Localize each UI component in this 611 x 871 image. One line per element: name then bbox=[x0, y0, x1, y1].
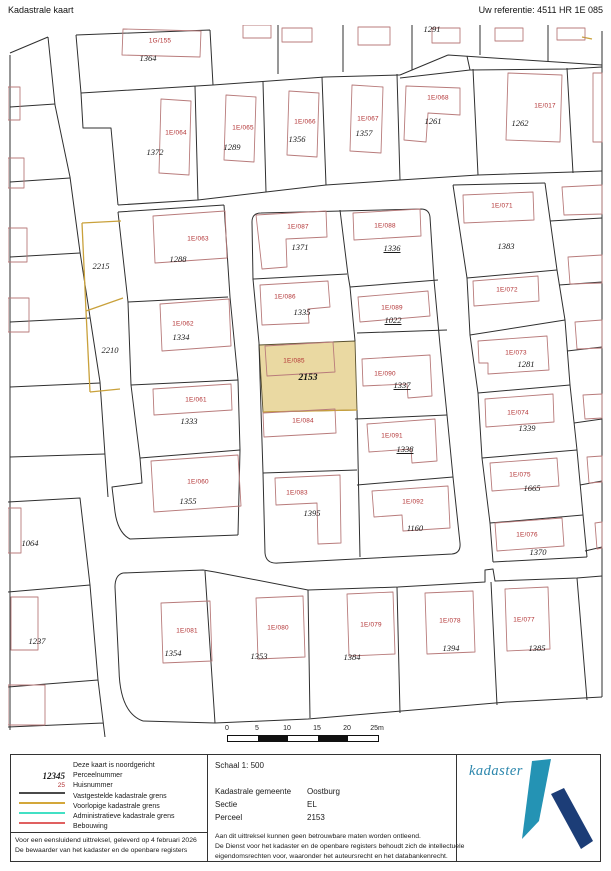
info-row: SectieEL bbox=[215, 800, 237, 809]
parcel-perceelnummer-label: 1371 bbox=[292, 242, 309, 252]
legend-label: Bebouwing bbox=[73, 822, 108, 832]
parcel-perceelnummer-label: 1394 bbox=[443, 643, 460, 653]
kadaster-logo-text: kadaster bbox=[469, 763, 523, 780]
info-row: Kadastrale gemeenteOostburg bbox=[215, 787, 291, 796]
parcel-perceelnummer-label: 1064 bbox=[22, 538, 39, 548]
parcel-perceelnummer-label: 1370 bbox=[530, 547, 547, 557]
parcel-perceelnummer-label: 2210 bbox=[102, 345, 119, 355]
parcel-huisnummer-label: 1E/071 bbox=[491, 203, 512, 210]
parcel-huisnummer-label: 1E/076 bbox=[516, 532, 537, 539]
cadastral-map: 1G/1551E/0641E/0651E/0661E/0671E/0681E/0… bbox=[8, 25, 603, 737]
parcel-perceelnummer-label: 2215 bbox=[93, 261, 110, 271]
page-title: Kadastrale kaart bbox=[8, 5, 74, 15]
scale-tick-label: 10 bbox=[283, 725, 291, 732]
parcel-huisnummer-label: 1E/068 bbox=[427, 95, 448, 102]
legend-panel: Deze kaart is noordgericht12345Perceelnu… bbox=[10, 754, 601, 862]
parcel-perceelnummer-label: 1356 bbox=[289, 134, 306, 144]
parcel-huisnummer-label: 1E/075 bbox=[509, 472, 530, 479]
info-label: Perceel bbox=[215, 813, 242, 822]
parcel-perceelnummer-label: 1022 bbox=[385, 315, 402, 325]
scale-tick-label: 15 bbox=[313, 725, 321, 732]
parcel-huisnummer-label: 1E/063 bbox=[187, 236, 208, 243]
parcel-perceelnummer-label: 1337 bbox=[394, 380, 411, 390]
info-row: Perceel2153 bbox=[215, 813, 242, 822]
parcel-huisnummer-label: 1E/081 bbox=[176, 628, 197, 635]
parcel-perceelnummer-label: 1334 bbox=[173, 332, 190, 342]
parcel-perceelnummer-label: 1354 bbox=[165, 648, 182, 658]
parcel-perceelnummer-label: 1364 bbox=[140, 53, 157, 63]
parcel-perceelnummer-label: 1262 bbox=[512, 118, 529, 128]
parcel-huisnummer-label: 1E/064 bbox=[165, 130, 186, 137]
parcel-perceelnummer-label: 1338 bbox=[397, 444, 414, 454]
legend-line-swatch bbox=[19, 792, 65, 794]
parcel-perceelnummer-label: 1355 bbox=[180, 496, 197, 506]
legend-sample-perceel: 12345 bbox=[43, 771, 66, 781]
scale-tick-label: 0 bbox=[225, 725, 229, 732]
parcel-perceelnummer-label: 2153 bbox=[299, 373, 318, 383]
parcel-perceelnummer-label: 1353 bbox=[251, 651, 268, 661]
footer-line: Voor een eensluidend uittreksel, gelever… bbox=[15, 836, 197, 846]
parcel-huisnummer-label: 1E/078 bbox=[439, 618, 460, 625]
scale-bar-segments bbox=[227, 735, 379, 742]
scale-tick-label: 20 bbox=[343, 725, 351, 732]
parcel-huisnummer-label: 1E/088 bbox=[374, 223, 395, 230]
parcel-perceelnummer-label: 1333 bbox=[181, 416, 198, 426]
parcel-huisnummer-label: 1E/084 bbox=[292, 418, 313, 425]
parcel-perceelnummer-label: 1237 bbox=[29, 636, 46, 646]
info-value: Oostburg bbox=[307, 787, 340, 796]
legend-line-swatch bbox=[19, 812, 65, 814]
parcel-huisnummer-label: 1E/072 bbox=[496, 287, 517, 294]
parcel-perceelnummer-label: 1339 bbox=[519, 423, 536, 433]
parcel-huisnummer-label: 1E/073 bbox=[505, 350, 526, 357]
footer-left: Voor een eensluidend uittreksel, gelever… bbox=[15, 836, 197, 856]
scale-label: Schaal 1: 500 bbox=[215, 761, 264, 770]
parcel-huisnummer-label: 1E/065 bbox=[232, 125, 253, 132]
scale-bar: 0510152025m bbox=[219, 725, 399, 747]
reference-number: Uw referentie: 4511 HR 1E 085 bbox=[479, 5, 603, 15]
panel-divider bbox=[207, 755, 208, 861]
legend-label: Administratieve kadastrale grens bbox=[73, 812, 175, 822]
legend-label: Perceelnummer bbox=[73, 771, 122, 781]
legend-line-swatch bbox=[19, 802, 65, 804]
parcel-huisnummer-label: 1E/017 bbox=[534, 103, 555, 110]
footer-line: eigendomsrechten voor, waaronder het aut… bbox=[215, 852, 464, 862]
parcel-huisnummer-label: 1E/089 bbox=[381, 305, 402, 312]
legend-label: Voorlopige kadastrale grens bbox=[73, 802, 160, 812]
footer-line: Aan dit uittreksel kunnen geen betrouwba… bbox=[215, 832, 464, 842]
parcel-huisnummer-label: 1E/060 bbox=[187, 479, 208, 486]
parcel-perceelnummer-label: 1383 bbox=[498, 241, 515, 251]
panel-divider bbox=[11, 832, 207, 833]
info-label: Sectie bbox=[215, 800, 237, 809]
legend-label: Deze kaart is noordgericht bbox=[73, 761, 155, 771]
parcel-perceelnummer-label: 1372 bbox=[147, 147, 164, 157]
legend-sample-huis: 25 bbox=[58, 782, 65, 789]
footer-line: De bewaarder van het kadaster en de open… bbox=[15, 846, 197, 856]
parcel-perceelnummer-label: 1384 bbox=[344, 652, 361, 662]
parcel-huisnummer-label: 1E/062 bbox=[172, 321, 193, 328]
parcel-huisnummer-label: 1E/074 bbox=[507, 410, 528, 417]
parcel-perceelnummer-label: 1357 bbox=[356, 128, 373, 138]
parcel-perceelnummer-label: 1160 bbox=[407, 523, 423, 533]
parcel-perceelnummer-label: 1289 bbox=[224, 142, 241, 152]
cadastral-extract-page: Kadastrale kaart Uw referentie: 4511 HR … bbox=[0, 0, 611, 871]
parcel-huisnummer-label: 1E/077 bbox=[513, 617, 534, 624]
parcel-huisnummer-label: 1E/085 bbox=[283, 358, 304, 365]
parcel-huisnummer-label: 1E/066 bbox=[294, 119, 315, 126]
parcel-huisnummer-label: 1E/086 bbox=[274, 294, 295, 301]
legend-line-swatch bbox=[19, 822, 65, 824]
info-value: EL bbox=[307, 800, 317, 809]
legend-label: Huisnummer bbox=[73, 781, 113, 791]
footer-right: Aan dit uittreksel kunnen geen betrouwba… bbox=[215, 832, 464, 862]
parcel-perceelnummer-label: 1288 bbox=[170, 254, 187, 264]
parcel-huisnummer-label: 1E/080 bbox=[267, 625, 288, 632]
parcel-huisnummer-label: 1E/083 bbox=[286, 490, 307, 497]
parcel-huisnummer-label: 1E/090 bbox=[374, 371, 395, 378]
legend-label: Vastgestelde kadastrale grens bbox=[73, 792, 167, 802]
footer-line: De Dienst voor het kadaster en de openba… bbox=[215, 842, 464, 852]
parcel-huisnummer-label: 1E/092 bbox=[402, 499, 423, 506]
info-label: Kadastrale gemeente bbox=[215, 787, 291, 796]
parcel-huisnummer-label: 1E/091 bbox=[381, 433, 402, 440]
parcel-perceelnummer-label: 1291 bbox=[424, 24, 441, 34]
info-value: 2153 bbox=[307, 813, 325, 822]
parcel-perceelnummer-label: 1395 bbox=[304, 508, 321, 518]
scale-tick-label: 25m bbox=[370, 725, 384, 732]
parcel-perceelnummer-label: 1336 bbox=[384, 243, 401, 253]
parcel-perceelnummer-label: 1665 bbox=[524, 483, 541, 493]
scale-tick-label: 5 bbox=[255, 725, 259, 732]
parcel-huisnummer-label: 1E/087 bbox=[287, 224, 308, 231]
parcel-huisnummer-label: 1E/067 bbox=[357, 116, 378, 123]
parcel-huisnummer-label: 1E/061 bbox=[185, 397, 206, 404]
parcel-huisnummer-label: 1E/079 bbox=[360, 622, 381, 629]
parcel-perceelnummer-label: 1281 bbox=[518, 359, 535, 369]
parcel-perceelnummer-label: 1385 bbox=[529, 643, 546, 653]
parcel-perceelnummer-label: 1335 bbox=[294, 307, 311, 317]
parcel-perceelnummer-label: 1261 bbox=[425, 116, 442, 126]
parcel-huisnummer-label: 1G/155 bbox=[149, 38, 171, 45]
